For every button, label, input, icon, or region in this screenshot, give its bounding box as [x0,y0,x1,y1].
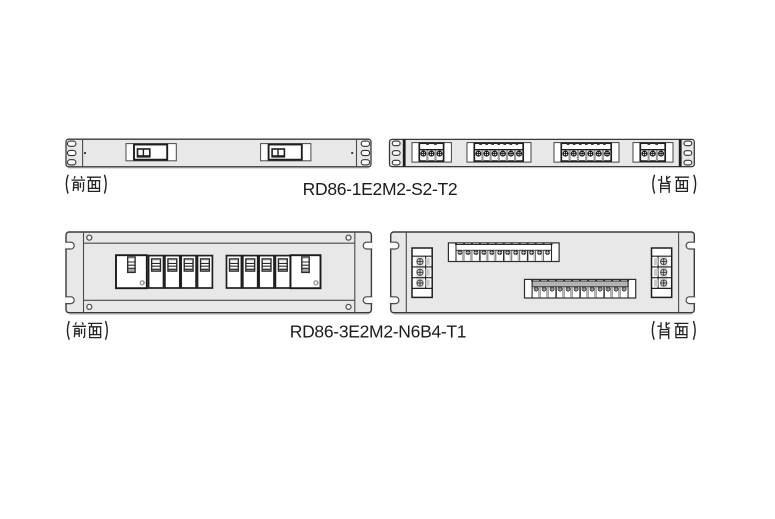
svg-text:RD86-1E2M2-S2-T2: RD86-1E2M2-S2-T2 [303,179,458,199]
svg-text:RD86-3E2M2-N6B4-T1: RD86-3E2M2-N6B4-T1 [290,321,466,341]
